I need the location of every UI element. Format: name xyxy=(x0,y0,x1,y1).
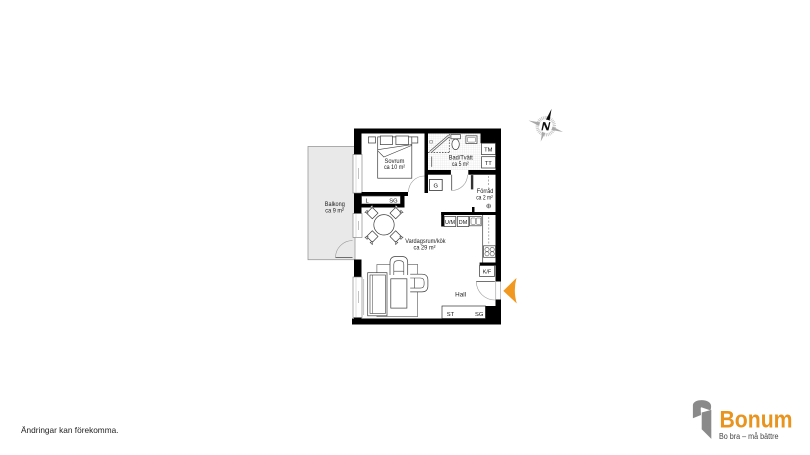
svg-text:K/F: K/F xyxy=(483,270,492,276)
svg-text:G: G xyxy=(434,184,439,190)
svg-text:Bonum: Bonum xyxy=(720,407,793,434)
svg-text:Ändringar kan förekomma.: Ändringar kan förekomma. xyxy=(21,425,119,435)
svg-text:DM: DM xyxy=(459,220,468,226)
svg-text:TM: TM xyxy=(484,147,493,153)
svg-text:ca 5 m²: ca 5 m² xyxy=(452,161,469,168)
svg-text:ca 29 m²: ca 29 m² xyxy=(414,245,436,252)
svg-text:TT: TT xyxy=(485,161,493,167)
svg-text:Förråd: Förråd xyxy=(477,188,494,195)
svg-text:ca 10 m²: ca 10 m² xyxy=(384,164,405,171)
svg-text:SG: SG xyxy=(389,198,398,204)
svg-text:Bo bra – må bättre: Bo bra – må bättre xyxy=(719,432,779,441)
svg-text:SG: SG xyxy=(475,312,484,318)
svg-text:U/M: U/M xyxy=(445,220,455,226)
svg-text:ST: ST xyxy=(447,312,455,318)
svg-text:Hall: Hall xyxy=(455,292,466,299)
svg-text:ca 9 m²: ca 9 m² xyxy=(325,207,344,214)
svg-text:ca 2 m²: ca 2 m² xyxy=(476,196,493,202)
